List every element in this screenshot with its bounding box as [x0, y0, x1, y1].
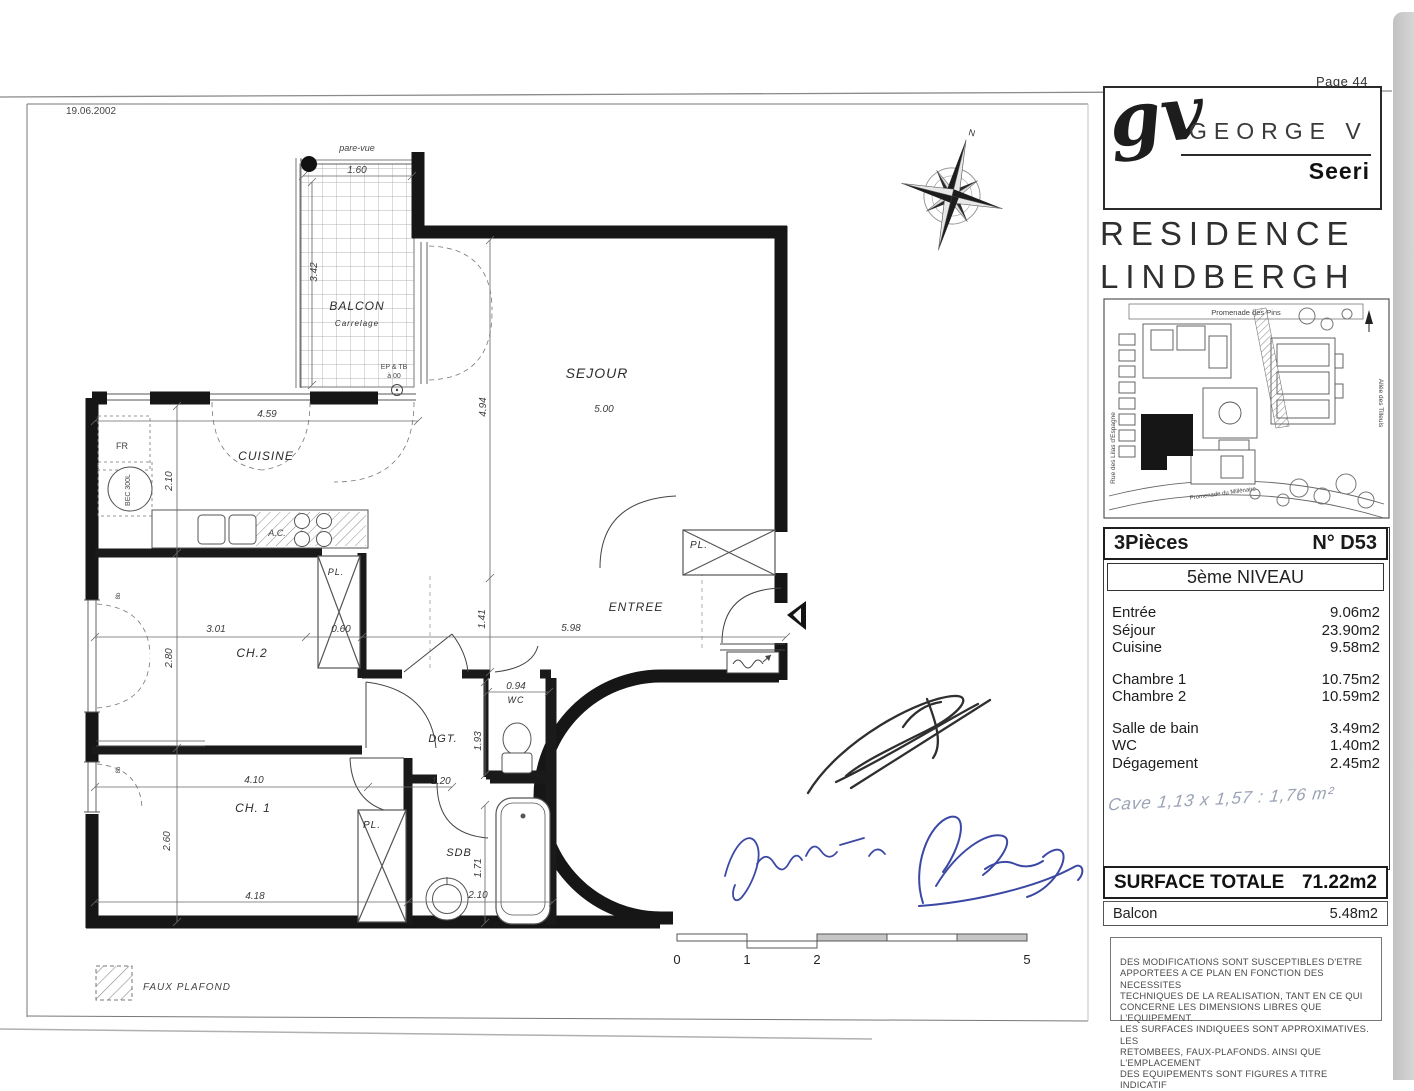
- room-area: 23.90m2: [1322, 622, 1380, 640]
- logo-monogram-icon: gv: [1105, 69, 1208, 164]
- dim-1-41: 1.41: [477, 609, 488, 628]
- developer-logo: gv GEORGE V Seeri: [1103, 86, 1382, 210]
- wc-door-arc: [495, 646, 538, 672]
- annotation-8b: 8b: [116, 592, 122, 599]
- room-area-row: Séjour23.90m2: [1112, 622, 1380, 640]
- scale-label-1: 1: [743, 952, 750, 967]
- dim-2-10: 2.10: [467, 890, 488, 901]
- dim-4-18: 4.18: [245, 891, 265, 902]
- scale-label-0: 0: [673, 952, 680, 967]
- closet-entree: [683, 530, 775, 575]
- signature-black: [808, 696, 990, 793]
- room-label-sdb: SDB: [446, 847, 472, 859]
- dim-3-01: 3.01: [206, 624, 225, 635]
- hob-burner: [295, 514, 310, 529]
- compass-rose-icon: N: [888, 115, 1020, 263]
- room-name: Entrée: [1112, 604, 1156, 622]
- ch2-door: [366, 682, 436, 748]
- dgt-door: [404, 634, 468, 672]
- dim-4-10: 4.10: [244, 775, 264, 786]
- hob-burner: [295, 532, 310, 547]
- scale-label-2: 2: [813, 952, 820, 967]
- room-group: Salle de bain3.49m2WC1.40m2Dégagement2.4…: [1112, 720, 1380, 773]
- signatures: [725, 696, 1082, 906]
- disclaimer-box: DES MODIFICATIONS SONT SUSCEPTIBLES D'ET…: [1110, 937, 1382, 1021]
- dim-0-94: 0.94: [506, 681, 526, 692]
- hob-burner: [317, 514, 332, 529]
- room-area: 2.45m2: [1330, 755, 1380, 773]
- sejour-door-arc: [600, 496, 676, 568]
- annotation-pare-vue: pare-vue: [338, 143, 375, 153]
- room-area-table: Entrée9.06m2Séjour23.90m2Cuisine9.58m2Ch…: [1112, 604, 1380, 786]
- signature-blue-left: [725, 838, 885, 900]
- map-street-left: Rue des Lilas d'Espagne: [1110, 412, 1117, 484]
- room-label-carrelage: Carrelage: [335, 319, 379, 328]
- room-area-row: Chambre 110.75m2: [1112, 671, 1380, 689]
- surface-total-label: SURFACE TOTALE: [1114, 872, 1284, 894]
- unit-type: 3Pièces: [1114, 532, 1189, 555]
- dim-5-00: 5.00: [594, 404, 614, 415]
- scan-page-edge: [1393, 12, 1414, 1080]
- room-label-wc: WC: [508, 695, 525, 705]
- electrical-panel: [727, 652, 779, 673]
- scale-bar: [677, 934, 1027, 948]
- ch1-door: [350, 758, 404, 814]
- kitchen-fixtures: [108, 467, 368, 548]
- room-name: WC: [1112, 737, 1137, 755]
- room-name: Salle de bain: [1112, 720, 1199, 738]
- room-label-cuisine: CUISINE: [238, 449, 294, 463]
- room-label-pl: PL.: [328, 567, 345, 577]
- room-area: 10.59m2: [1322, 688, 1380, 706]
- room-area: 9.06m2: [1330, 604, 1380, 622]
- dim-4-59: 4.59: [257, 409, 277, 420]
- residence-line1: RESIDENCE: [1100, 212, 1392, 255]
- annotation-ep-tb: EP & TB: [381, 364, 408, 371]
- room-name: Dégagement: [1112, 755, 1198, 773]
- balcony-post: [301, 156, 317, 172]
- annotation-faux-plafond: FAUX PLAFOND: [143, 982, 231, 993]
- room-group: Entrée9.06m2Séjour23.90m2Cuisine9.58m2: [1112, 604, 1380, 657]
- dim-2-10: 2.10: [164, 471, 175, 492]
- annotation-fr: FR: [116, 441, 128, 451]
- dim-1-71: 1.71: [473, 858, 484, 877]
- room-area-row: Cuisine9.58m2: [1112, 639, 1380, 657]
- logo-divider: [1181, 154, 1371, 156]
- unit-level: 5ème NIVEAU: [1107, 563, 1384, 591]
- room-area-row: Entrée9.06m2: [1112, 604, 1380, 622]
- dim-1-60: 1.60: [347, 165, 367, 176]
- surface-total-value: 71.22m2: [1302, 872, 1377, 894]
- annotation-a-c: A.C.: [267, 528, 286, 538]
- room-name: Chambre 2: [1112, 688, 1186, 706]
- room-label-dgt: DGT.: [428, 733, 457, 745]
- room-label-ch-2: CH.2: [236, 646, 267, 660]
- hob-burner: [317, 532, 332, 547]
- sdb-door-arc: [437, 783, 488, 838]
- balcony-row: Balcon 5.48m2: [1103, 901, 1388, 926]
- scale-label-5: 5: [1023, 952, 1030, 967]
- room-area: 10.75m2: [1322, 671, 1380, 689]
- room-area-row: Salle de bain3.49m2: [1112, 720, 1380, 738]
- dim-5-98: 5.98: [561, 623, 581, 634]
- room-label-ch-1: CH. 1: [235, 801, 271, 815]
- dim-0-60: 0.60: [331, 624, 351, 635]
- room-label-sejour: SEJOUR: [566, 365, 629, 381]
- site-map: Promenade des Pins Rue des Lilas d'Espag…: [1103, 298, 1390, 524]
- room-name: Séjour: [1112, 622, 1155, 640]
- surface-total-row: SURFACE TOTALE 71.22m2: [1103, 866, 1388, 899]
- compass-north-label: N: [967, 127, 976, 138]
- map-street-right: Allée des Tilleuls: [1377, 379, 1384, 428]
- toilet-bowl: [503, 723, 531, 755]
- room-name: Chambre 1: [1112, 671, 1186, 689]
- room-label-entree: ENTREE: [609, 600, 664, 614]
- unit-header: 3Pièces N° D53: [1103, 527, 1388, 560]
- logo-name: GEORGE V: [1189, 118, 1368, 145]
- room-area-row: Dégagement2.45m2: [1112, 755, 1380, 773]
- room-area-row: WC1.40m2: [1112, 737, 1380, 755]
- radiator: [96, 741, 205, 746]
- annotation-8b: 8b: [116, 766, 122, 773]
- dim-1-20: 1.20: [431, 776, 451, 787]
- compass-cardinal-points: [888, 127, 1016, 263]
- room-group: Chambre 110.75m2Chambre 210.59m2: [1112, 671, 1380, 706]
- map-street-top: Promenade des Pins: [1211, 308, 1281, 317]
- faux-plafond-swatch: [96, 966, 132, 1000]
- room-area: 3.49m2: [1330, 720, 1380, 738]
- room-label-pl: PL.: [363, 820, 381, 831]
- residence-title: RESIDENCE LINDBERGH: [1100, 212, 1392, 298]
- balcony-value: 5.48m2: [1330, 906, 1378, 922]
- dim-1-93: 1.93: [473, 731, 484, 751]
- room-label-balcon: BALCON: [329, 299, 384, 313]
- curved-wall: [540, 676, 673, 918]
- logo-subtitle: Seeri: [1309, 158, 1370, 185]
- room-name: Cuisine: [1112, 639, 1162, 657]
- annotation-bec-300l: BEC 300L: [125, 474, 132, 506]
- room-label-pl: PL.: [690, 540, 708, 551]
- dim-2-60: 2.60: [162, 831, 173, 852]
- sink-left: [198, 515, 225, 544]
- toilet-tank: [502, 753, 532, 773]
- balcony-label: Balcon: [1113, 906, 1157, 922]
- annotation-00: à 00: [387, 373, 401, 380]
- unit-number: N° D53: [1312, 532, 1377, 555]
- dim-2-80: 2.80: [164, 648, 175, 669]
- room-area: 9.58m2: [1330, 639, 1380, 657]
- annotation-19-06-2002: 19.06.2002: [66, 106, 116, 117]
- dim-3-42: 3.42: [309, 262, 320, 282]
- room-area-row: Chambre 210.59m2: [1112, 688, 1380, 706]
- signature-blue-right: [919, 817, 1082, 906]
- residence-line2: LINDBERGH: [1100, 255, 1392, 298]
- dim-4-94: 4.94: [478, 397, 489, 417]
- room-area: 1.40m2: [1330, 737, 1380, 755]
- sink-right: [229, 515, 256, 544]
